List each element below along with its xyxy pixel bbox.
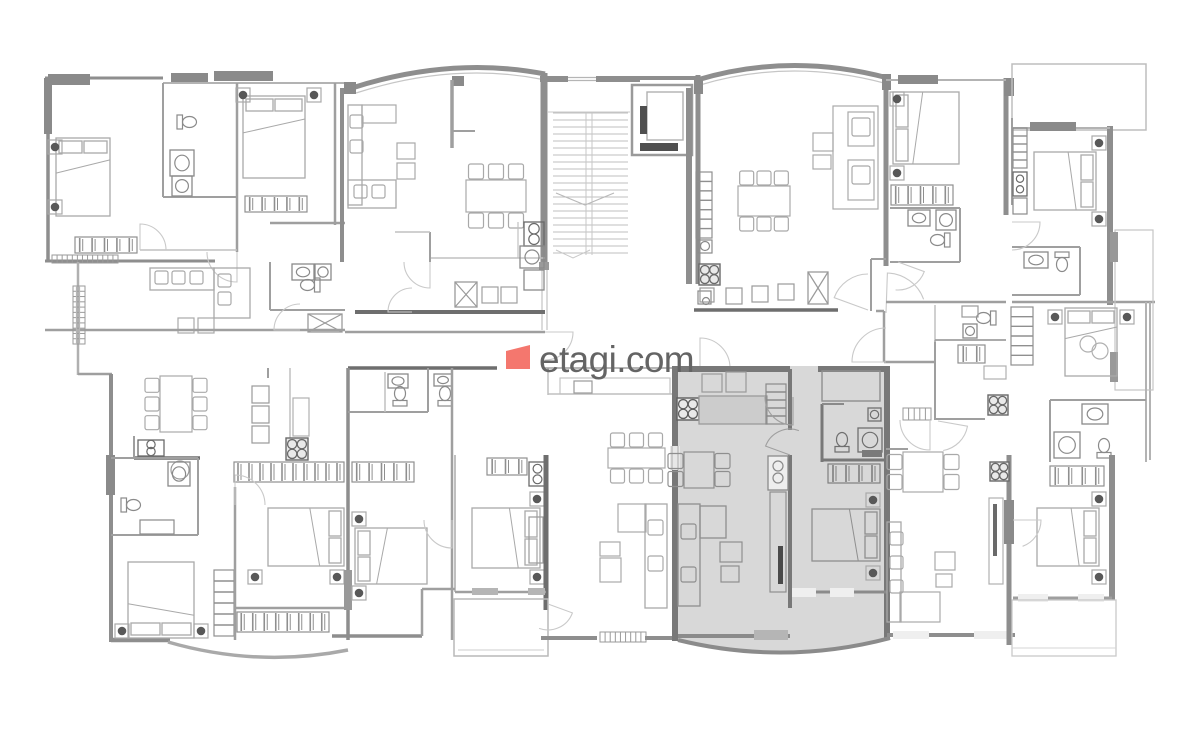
svg-text:etagi.com: etagi.com <box>539 339 694 380</box>
